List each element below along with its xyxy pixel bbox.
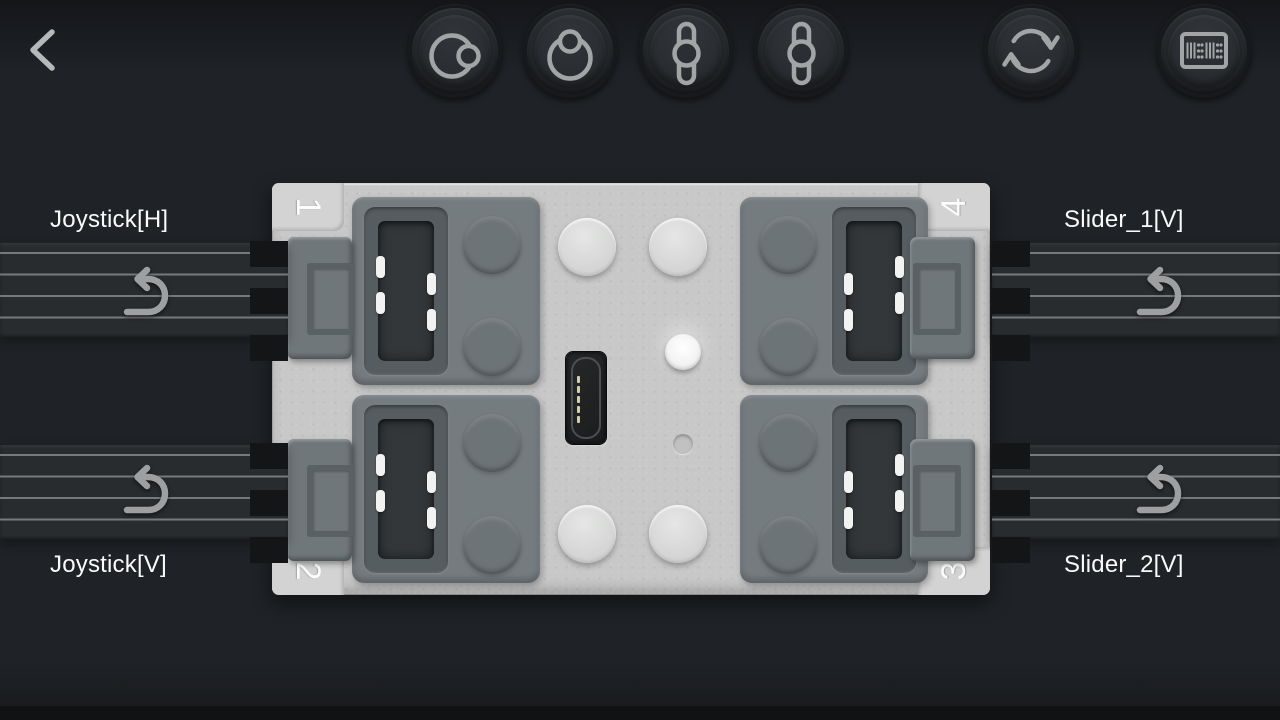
slider-vertical-icon bbox=[754, 4, 848, 98]
cable-connector-teeth bbox=[992, 241, 1030, 361]
screen: Joystick[H] Joystick[V] Slider_1[V] Slid… bbox=[0, 0, 1280, 720]
stud bbox=[463, 318, 521, 376]
device-grid-icon bbox=[1157, 4, 1251, 98]
stud bbox=[759, 414, 817, 472]
stud bbox=[759, 318, 817, 376]
socket-cavity bbox=[846, 221, 902, 361]
slider-vertical-button-2[interactable] bbox=[754, 4, 848, 98]
stud bbox=[759, 516, 817, 574]
brick-hub: 1 4 2 3 bbox=[272, 183, 990, 595]
cable-plug-port4 bbox=[910, 237, 975, 359]
joystick-horizontal-icon bbox=[408, 4, 502, 98]
port-tab-1: 1 bbox=[272, 183, 344, 231]
socket bbox=[364, 405, 448, 573]
socket-cavity bbox=[378, 419, 434, 559]
led-indicator bbox=[665, 334, 701, 370]
cable-connector-teeth bbox=[250, 241, 288, 361]
channel-label-joystick-h: Joystick[H] bbox=[50, 206, 168, 234]
bottom-bar bbox=[0, 706, 1280, 720]
stud bbox=[463, 216, 521, 274]
slider-vertical-icon bbox=[639, 4, 733, 98]
channel-label-joystick-v: Joystick[V] bbox=[50, 551, 167, 579]
joystick-horizontal-button[interactable] bbox=[408, 4, 502, 98]
device-button[interactable] bbox=[1157, 4, 1251, 98]
channel-label-slider-1: Slider_1[V] bbox=[1064, 206, 1184, 234]
reset-dot bbox=[673, 434, 693, 454]
port-panel-4[interactable] bbox=[740, 197, 928, 385]
slider-vertical-button-1[interactable] bbox=[639, 4, 733, 98]
port-panel-2[interactable] bbox=[352, 395, 540, 583]
port-number: 1 bbox=[284, 171, 332, 243]
socket bbox=[364, 207, 448, 375]
port-panel-3[interactable] bbox=[740, 395, 928, 583]
stud-light bbox=[649, 218, 707, 276]
port-number: 4 bbox=[930, 171, 978, 243]
undo-arrow-icon[interactable] bbox=[1127, 263, 1189, 325]
micro-usb-port bbox=[566, 352, 606, 444]
socket bbox=[832, 405, 916, 573]
cable-plug-port2 bbox=[287, 439, 352, 561]
stud-light bbox=[649, 505, 707, 563]
joystick-vertical-button[interactable] bbox=[523, 4, 617, 98]
joystick-vertical-icon bbox=[523, 4, 617, 98]
stud bbox=[463, 414, 521, 472]
port-tab-4: 4 bbox=[918, 183, 990, 231]
refresh-icon bbox=[984, 4, 1078, 98]
socket bbox=[832, 207, 916, 375]
back-button[interactable] bbox=[18, 26, 66, 78]
refresh-button[interactable] bbox=[984, 4, 1078, 98]
stud bbox=[463, 516, 521, 574]
port-panel-1[interactable] bbox=[352, 197, 540, 385]
socket-cavity bbox=[378, 221, 434, 361]
stud bbox=[759, 216, 817, 274]
undo-arrow-icon[interactable] bbox=[1127, 461, 1189, 523]
undo-arrow-icon[interactable] bbox=[114, 461, 176, 523]
channel-label-slider-2: Slider_2[V] bbox=[1064, 551, 1184, 579]
cable-connector-teeth bbox=[992, 443, 1030, 563]
cable-connector-teeth bbox=[250, 443, 288, 563]
stud-light bbox=[558, 505, 616, 563]
cable-plug-port3 bbox=[910, 439, 975, 561]
socket-cavity bbox=[846, 419, 902, 559]
stud-light bbox=[558, 218, 616, 276]
undo-arrow-icon[interactable] bbox=[114, 263, 176, 325]
back-chevron-icon bbox=[25, 27, 59, 78]
cable-plug-port1 bbox=[287, 237, 352, 359]
